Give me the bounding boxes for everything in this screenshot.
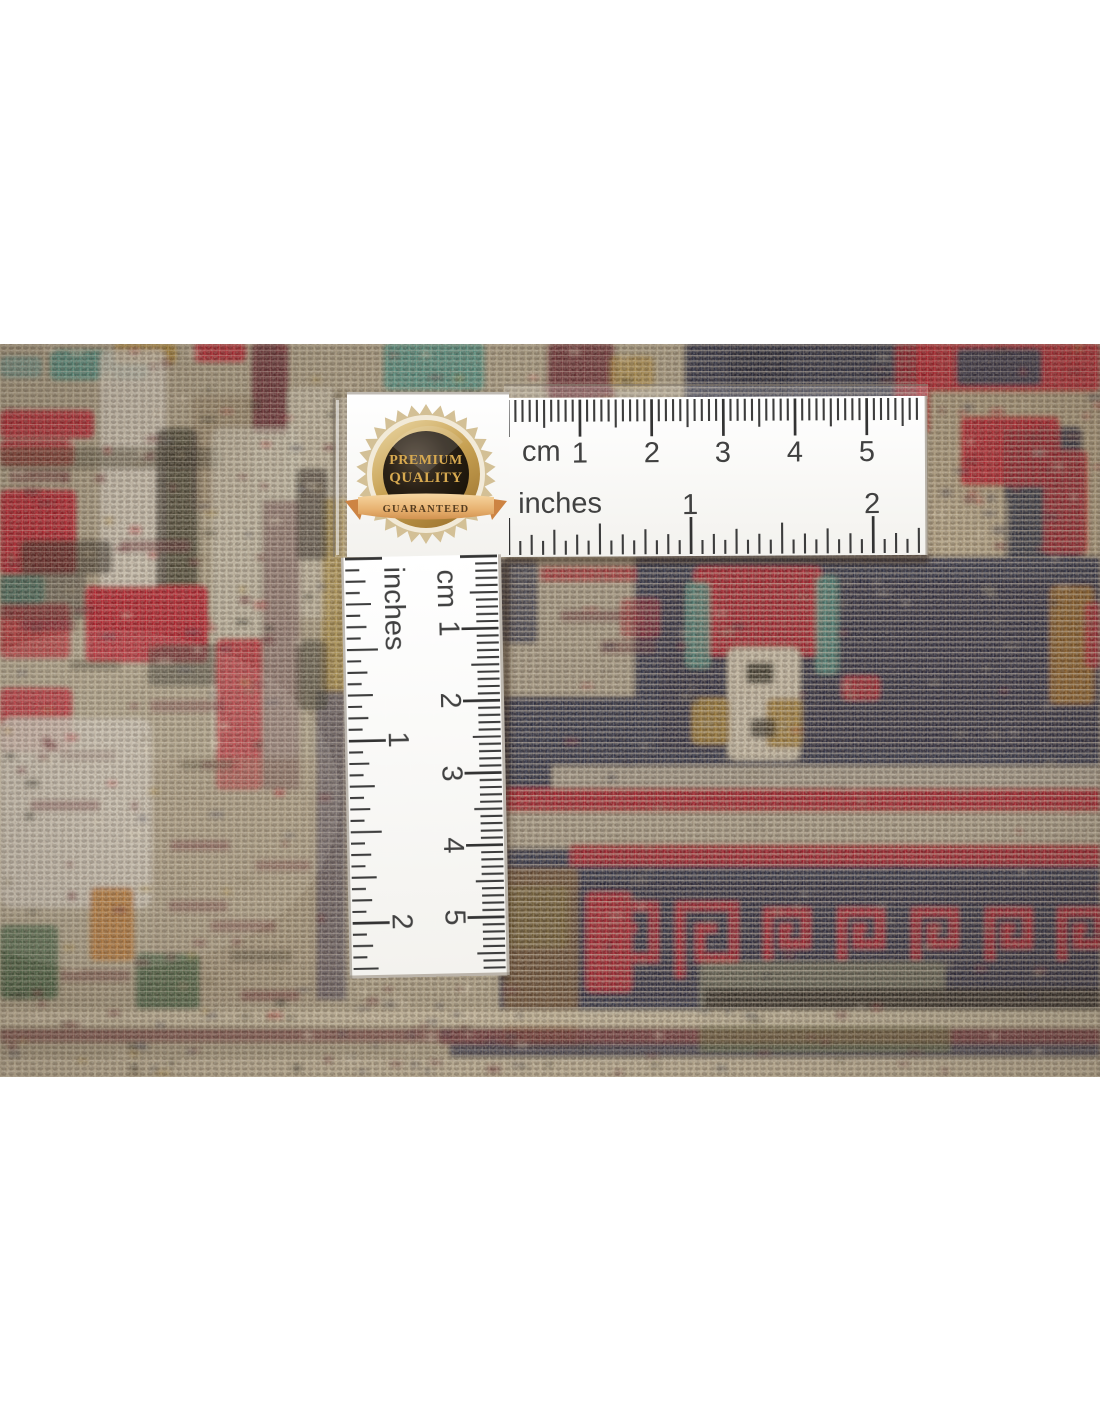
svg-text:3: 3 bbox=[435, 765, 467, 782]
svg-text:1: 1 bbox=[432, 620, 464, 637]
svg-text:4: 4 bbox=[437, 837, 469, 854]
svg-text:5: 5 bbox=[859, 436, 875, 468]
svg-text:2: 2 bbox=[385, 913, 417, 930]
svg-text:inches: inches bbox=[518, 488, 602, 520]
svg-text:cm: cm bbox=[522, 436, 561, 468]
svg-text:GUARANTEED: GUARANTEED bbox=[383, 504, 470, 515]
svg-text:1: 1 bbox=[572, 438, 588, 470]
svg-text:1: 1 bbox=[682, 489, 698, 521]
svg-text:QUALITY: QUALITY bbox=[389, 470, 463, 486]
svg-text:cm: cm bbox=[430, 569, 463, 608]
svg-text:3: 3 bbox=[715, 437, 731, 469]
svg-text:1: 1 bbox=[382, 731, 414, 748]
svg-text:4: 4 bbox=[787, 436, 803, 468]
svg-text:2: 2 bbox=[864, 488, 880, 520]
svg-text:inches: inches bbox=[377, 566, 411, 650]
svg-text:2: 2 bbox=[644, 437, 660, 469]
svg-text:2: 2 bbox=[434, 692, 466, 709]
svg-text:5: 5 bbox=[438, 909, 470, 926]
svg-text:PREMIUM: PREMIUM bbox=[389, 453, 463, 468]
